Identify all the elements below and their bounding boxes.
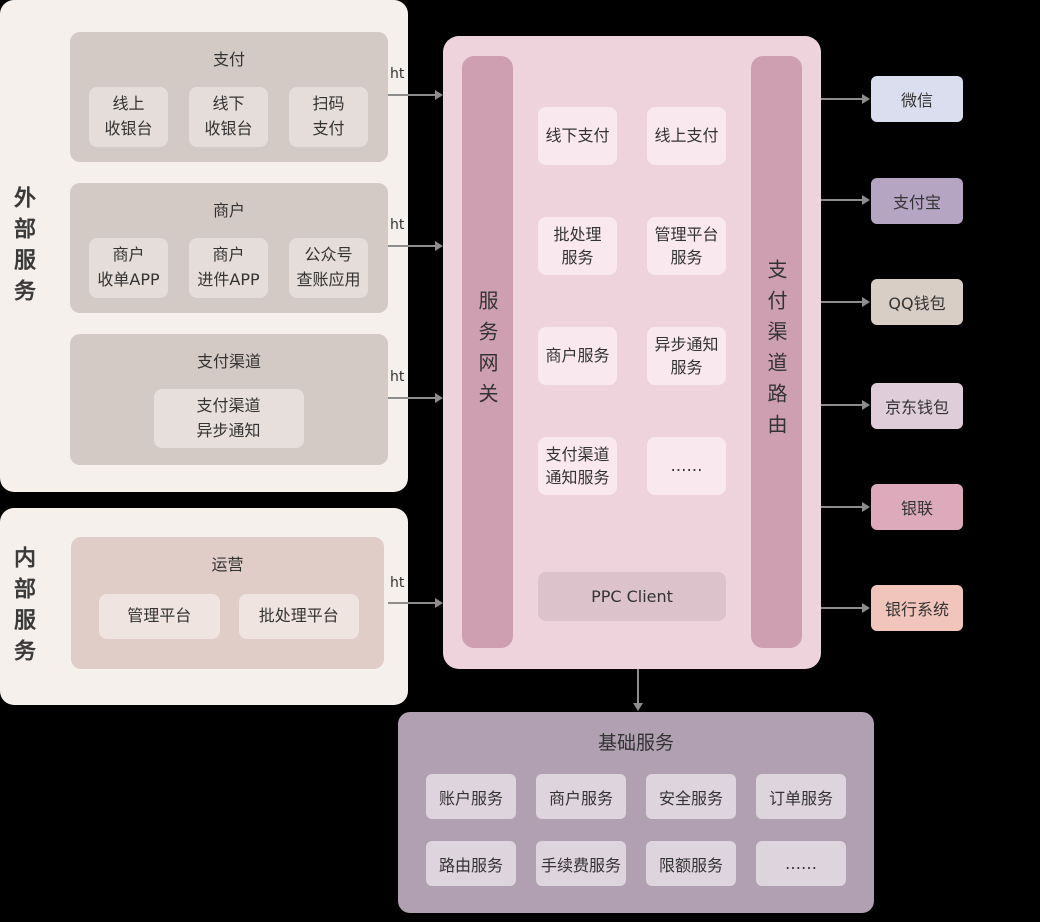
- payment-group-title: 支付: [70, 46, 388, 70]
- fnd-account-service: 账户服务: [426, 774, 516, 819]
- foundation-panel-title: 基础服务: [398, 728, 874, 755]
- core-services-grid: 线下支付 线上支付 批处理 服务 管理平台 服务 商户服务 异步通知 服务 支付…: [538, 107, 726, 495]
- arrow-merchant-to-gateway: [388, 245, 435, 247]
- node-official-account-reconciliation: 公众号 查账应用: [289, 238, 368, 298]
- external-panel-label: 外部服务: [6, 186, 38, 310]
- http-label: ht: [390, 369, 404, 385]
- node-batch-platform: 批处理平台: [239, 594, 360, 639]
- core-platform-panel: 服务网关 线下支付 线上支付 批处理 服务 管理平台 服务 商户服务 异步通知 …: [443, 36, 821, 669]
- svc-offline-payment: 线下支付: [538, 107, 617, 165]
- channel-bank-system: 银行系统: [871, 585, 963, 631]
- svc-channel-notify-service: 支付渠道 通知服务: [538, 437, 617, 495]
- http-label: ht: [390, 575, 404, 591]
- payment-group: 支付 线上 收银台 线下 收银台 扫码 支付: [70, 32, 388, 162]
- arrow-router-to-jd-wallet: [821, 404, 862, 406]
- payment-channel-group-title: 支付渠道: [70, 348, 388, 372]
- payment-channel-group: 支付渠道 支付渠道 异步通知: [70, 334, 388, 465]
- channel-qq-wallet: QQ钱包: [871, 279, 963, 325]
- ppc-client-box: PPC Client: [538, 572, 726, 621]
- svc-merchant-service: 商户服务: [538, 327, 617, 385]
- arrow-router-to-alipay: [821, 199, 862, 201]
- arrow-payment-to-gateway: [388, 94, 435, 96]
- merchant-group-row: 商户 收单APP 商户 进件APP 公众号 查账应用: [89, 238, 368, 298]
- internal-services-panel: 内部服务 运营 管理平台 批处理平台: [0, 508, 408, 705]
- payment-group-row: 线上 收银台 线下 收银台 扫码 支付: [89, 87, 368, 147]
- service-gateway-label: 服务网关: [473, 290, 502, 414]
- internal-panel-label: 内部服务: [6, 546, 38, 670]
- channel-jd-wallet: 京东钱包: [871, 383, 963, 429]
- fnd-order-service: 订单服务: [756, 774, 846, 819]
- foundation-services-grid: 账户服务 商户服务 安全服务 订单服务 路由服务 手续费服务 限额服务 ……: [426, 774, 846, 886]
- fnd-security-service: 安全服务: [646, 774, 736, 819]
- http-label: ht: [390, 66, 404, 82]
- service-gateway-bar: 服务网关: [462, 56, 513, 648]
- svc-admin-platform-service: 管理平台 服务: [647, 217, 726, 275]
- merchant-group-title: 商户: [70, 197, 388, 221]
- fnd-ellipsis: ……: [756, 841, 846, 886]
- node-admin-platform: 管理平台: [99, 594, 220, 639]
- svc-async-notify-service: 异步通知 服务: [647, 327, 726, 385]
- arrow-ops-to-gateway: [388, 602, 435, 604]
- foundation-services-panel: 基础服务 账户服务 商户服务 安全服务 订单服务 路由服务 手续费服务 限额服务…: [398, 712, 874, 913]
- channel-router-label: 支付渠道路由: [762, 259, 791, 445]
- fnd-limit-service: 限额服务: [646, 841, 736, 886]
- fnd-merchant-service: 商户服务: [536, 774, 626, 819]
- merchant-group: 商户 商户 收单APP 商户 进件APP 公众号 查账应用: [70, 183, 388, 313]
- svc-online-payment: 线上支付: [647, 107, 726, 165]
- arrow-router-to-wechat: [821, 98, 862, 100]
- fnd-fee-service: 手续费服务: [536, 841, 626, 886]
- arrow-router-to-unionpay: [821, 506, 862, 508]
- channel-wechat: 微信: [871, 76, 963, 122]
- http-label: ht: [390, 217, 404, 233]
- channel-router-bar: 支付渠道路由: [751, 56, 802, 648]
- arrow-router-to-bank-system: [821, 607, 862, 609]
- operations-group-row: 管理平台 批处理平台: [99, 594, 359, 639]
- node-merchant-acquiring-app: 商户 收单APP: [89, 238, 168, 298]
- channel-alipay: 支付宝: [871, 178, 963, 224]
- arrow-router-to-qq-wallet: [821, 301, 862, 303]
- external-services-panel: 外部服务 支付 线上 收银台 线下 收银台 扫码 支付 商户 商户 收单APP …: [0, 0, 408, 492]
- svc-ellipsis: ……: [647, 437, 726, 495]
- node-merchant-onboarding-app: 商户 进件APP: [189, 238, 268, 298]
- node-scan-pay: 扫码 支付: [289, 87, 368, 147]
- diagram-canvas: 外部服务 支付 线上 收银台 线下 收银台 扫码 支付 商户 商户 收单APP …: [0, 0, 1040, 922]
- node-offline-cashier: 线下 收银台: [189, 87, 268, 147]
- operations-group-title: 运营: [71, 551, 384, 575]
- arrow-channel-to-gateway: [388, 397, 435, 399]
- fnd-routing-service: 路由服务: [426, 841, 516, 886]
- node-channel-async-notify: 支付渠道 异步通知: [154, 389, 304, 448]
- payment-channel-group-row: 支付渠道 异步通知: [89, 389, 368, 448]
- channel-unionpay: 银联: [871, 484, 963, 530]
- svc-batch-service: 批处理 服务: [538, 217, 617, 275]
- node-online-cashier: 线上 收银台: [89, 87, 168, 147]
- operations-group: 运营 管理平台 批处理平台: [71, 537, 384, 669]
- arrow-core-to-foundation: [637, 669, 639, 703]
